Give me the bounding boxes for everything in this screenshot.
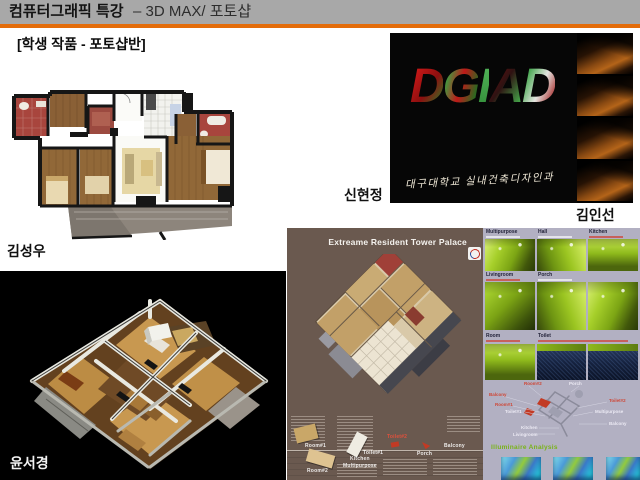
- poster-rotated-plan: [295, 254, 475, 414]
- gallery-photo-kitchen: [588, 239, 638, 271]
- photo-tile: [577, 161, 633, 204]
- illuminaire-analysis-title: Illuminaire Analysis: [491, 444, 558, 451]
- gallery-label-row-2: Livingroom Porch: [483, 271, 640, 282]
- dgiad-letter: D: [410, 60, 443, 113]
- dgiad-logotype: DGIAD: [410, 63, 555, 111]
- diagram-label-livingroom: Livingroom: [513, 432, 538, 437]
- poster-text-block: [447, 416, 480, 432]
- diagram-label-balcony-right: Balcony: [609, 421, 627, 426]
- diagram-label-toilet2: Toilet#2: [609, 398, 626, 403]
- poster-label-kitchen-line1: Kitchen: [350, 456, 370, 462]
- floorplan-2d-artwork: [10, 88, 238, 240]
- diagram-label-balcony-left: Balcony: [489, 392, 507, 397]
- dgiad-letter: D: [522, 60, 555, 113]
- gallery-label-row-1: Multipurpose Hall Kitchen: [483, 228, 640, 239]
- section-subtitle: [학생 작품 - 포토샵반]: [17, 34, 146, 54]
- dgiad-artwork: DGIAD 대구대학교 실내건축디자인과: [390, 33, 633, 203]
- accent-rule: [0, 24, 640, 28]
- photo-tile: [577, 33, 633, 76]
- gallery-photo-multipurpose: [485, 239, 535, 271]
- poster-label-room1: Room#1: [305, 443, 326, 450]
- gallery-label: Multipurpose: [483, 229, 535, 238]
- gallery-image-row-2: [483, 282, 640, 330]
- gallery-photo-toilet-2: [588, 344, 638, 380]
- author-name-dgiad-right: 김인선: [576, 205, 615, 225]
- poster-label-balcony: Balcony: [444, 443, 465, 450]
- poster-label-kitchen: Kitchen Multipurpose: [343, 456, 377, 469]
- gallery-label: Toilet: [535, 333, 640, 342]
- dgiad-letter: A: [489, 60, 522, 113]
- gallery-photo-livingroom: [485, 282, 535, 330]
- poster-label-toilet1: Toilet#1: [363, 450, 383, 457]
- diagram-label-room1: Room#1: [495, 402, 513, 407]
- gallery-photo-porch-2: [588, 282, 638, 330]
- author-name-dgiad-left: 신현정: [344, 185, 383, 205]
- diagram-label-room2: Room#2: [524, 381, 542, 386]
- gallery-label: Livingroom: [483, 272, 535, 281]
- diagram-label-multipurpose: Multipurpose: [595, 409, 623, 414]
- author-name-floorplan: 김성우: [7, 241, 46, 261]
- gallery-photo-toilet: [537, 344, 587, 380]
- photo-tile: [577, 118, 633, 161]
- dgiad-letter: I: [478, 60, 489, 113]
- illuminance-render: [606, 457, 640, 480]
- axon-3d-artwork: 윤서경: [0, 271, 286, 480]
- diagram-label-porch: Porch: [569, 381, 582, 386]
- slide: 컴퓨터그래픽 특강 – 3D MAX/ 포토샵 [학생 작품 - 포토샵반]: [0, 0, 640, 480]
- slide-title-rest: – 3D MAX/ 포토샵: [133, 3, 251, 20]
- diagram-label-kitchen: Kitchen: [521, 425, 538, 430]
- gallery-label: Hall: [535, 229, 586, 238]
- poster-label-porch: Porch: [417, 451, 432, 458]
- poster-label-room2: Room#2: [307, 468, 328, 475]
- illuminance-render: [553, 457, 593, 480]
- author-name-axon: 윤서경: [10, 453, 49, 473]
- gallery-key-diagram: Room#2 Porch Balcony Room#1 Toilet#1 Toi…: [483, 380, 640, 442]
- diagram-label-toilet1: Toilet#1: [505, 409, 522, 414]
- gallery-label: Room: [483, 333, 535, 342]
- gallery-photo-hall: [537, 239, 587, 271]
- poster-label-toilet2: Toilet#2: [387, 434, 407, 441]
- axon-3d-render: [0, 271, 286, 480]
- poster-title: Extreame Resident Tower Palace: [328, 237, 467, 247]
- gallery-label-row-3: Room Toilet: [483, 330, 640, 344]
- gallery-label: Porch: [535, 272, 586, 281]
- photo-tile: [577, 76, 633, 119]
- dgiad-caption: 대구대학교 실내건축디자인과: [405, 169, 555, 192]
- slide-title-strong: 컴퓨터그래픽 특강: [9, 3, 124, 20]
- dgiad-letter: G: [443, 60, 478, 113]
- floorplan-2d-drawing: [10, 88, 238, 240]
- gallery-label: Kitchen: [586, 229, 640, 238]
- gallery-photo-porch: [537, 282, 587, 330]
- tower-palace-poster: Extreame Resident Tower Palace: [287, 228, 483, 480]
- slide-title-bar: 컴퓨터그래픽 특강 – 3D MAX/ 포토샵: [0, 0, 640, 24]
- dgiad-photo-strip: [577, 33, 633, 203]
- poster-label-kitchen-line2: Multipurpose: [343, 463, 377, 469]
- green-gallery-panel: Multipurpose Hall Kitchen Livingroom Por…: [483, 228, 640, 480]
- illuminance-render: [501, 457, 541, 480]
- gallery-image-row-3: [483, 344, 640, 380]
- gallery-image-row-1: [483, 239, 640, 271]
- gallery-photo-room: [485, 344, 535, 380]
